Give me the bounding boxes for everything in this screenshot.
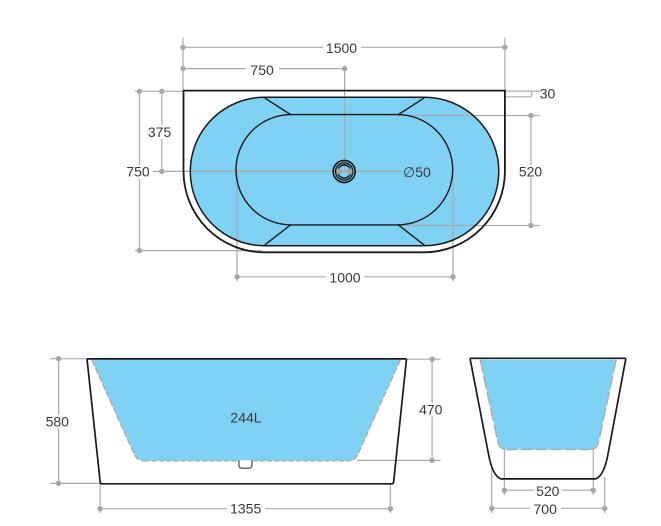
svg-text:750: 750: [126, 164, 150, 180]
svg-text:30: 30: [540, 86, 556, 102]
svg-text:1355: 1355: [230, 501, 261, 517]
svg-text:244L: 244L: [230, 410, 261, 426]
svg-text:375: 375: [148, 124, 172, 140]
svg-text:470: 470: [419, 402, 443, 418]
svg-text:1500: 1500: [326, 40, 357, 56]
svg-text:580: 580: [46, 414, 70, 430]
svg-text:520: 520: [536, 483, 560, 499]
svg-text:∅50: ∅50: [403, 164, 431, 180]
svg-text:750: 750: [250, 62, 274, 78]
svg-text:520: 520: [519, 164, 543, 180]
svg-text:1000: 1000: [329, 269, 360, 285]
svg-text:700: 700: [534, 501, 558, 517]
